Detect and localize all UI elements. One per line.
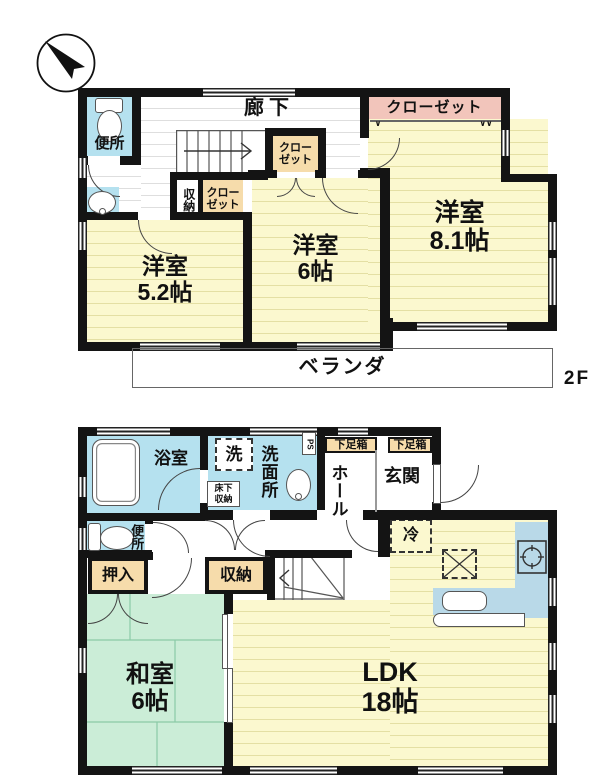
sliding-door-lower — [227, 668, 233, 723]
toilet-2f-label: 便所 — [86, 134, 133, 154]
ps-label: PS — [302, 433, 316, 455]
shoebox-1-label: 下足箱 — [325, 437, 377, 453]
floor-plan: ∨ ∨∨ — [0, 0, 612, 783]
fridge-label: 冷 — [390, 519, 432, 553]
kitchen-hatch-x — [442, 549, 477, 579]
kitchen-sink — [442, 591, 487, 611]
washitsu-label: 和室6帖 — [108, 650, 192, 728]
oshiire-label: 押入 — [88, 557, 148, 594]
sliding-door-upper — [222, 614, 228, 669]
entrance-label: 玄関 — [374, 463, 430, 489]
closet-pipe-mark-right: ∨∨ — [474, 119, 498, 129]
stove-icon — [517, 540, 547, 574]
underfloor-storage-label: 床下収納 — [207, 481, 240, 507]
stairs-1f — [275, 557, 345, 600]
hall-label: ホール — [324, 455, 352, 527]
floor2-tag: 2F — [554, 366, 600, 392]
bathtub — [92, 439, 140, 506]
stairs-2f — [176, 130, 265, 172]
entrance-door-leaf — [433, 464, 441, 504]
ldk-label: LDK18帖 — [342, 646, 438, 728]
closet-main-label: クローゼット — [368, 97, 501, 119]
western-room-6-label: 洋室6帖 — [253, 222, 378, 296]
storage-2f-label: 収納 — [178, 181, 198, 218]
kitchen-counter-front — [433, 613, 525, 627]
closet-a-label: クローゼット — [275, 137, 316, 171]
storage-1f-label: 収納 — [205, 557, 267, 594]
closet-b-label: クローゼット — [204, 181, 242, 217]
western-room-52-label: 洋室5.2帖 — [95, 243, 235, 317]
closet-pipe-mark-left: ∨ — [372, 119, 384, 129]
washroom-label: 洗面所 — [254, 436, 282, 508]
veranda-label: ベランダ — [240, 352, 445, 382]
western-room-81-label: 洋室8.1帖 — [382, 188, 537, 266]
washbasin-2f-faucet — [99, 208, 106, 215]
bathroom-label: 浴室 — [142, 447, 200, 471]
hallway-2f-label: 廊下 — [232, 96, 306, 121]
shoebox-2-label: 下足箱 — [388, 437, 432, 453]
washer-label: 洗 — [215, 438, 253, 471]
washroom-sink-faucet — [295, 493, 302, 500]
toilet-1f-label: 便所 — [126, 520, 146, 554]
